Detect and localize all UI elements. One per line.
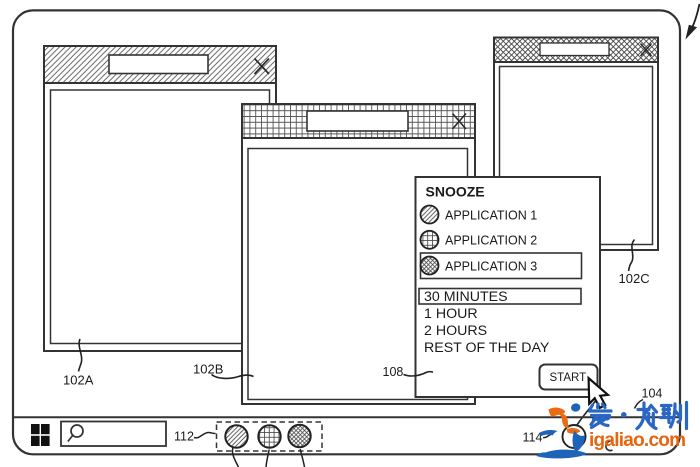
svg-text:APPLICATION 2: APPLICATION 2 <box>445 234 537 248</box>
svg-text:REST OF THE DAY: REST OF THE DAY <box>424 340 550 356</box>
svg-text:108: 108 <box>383 365 404 379</box>
svg-text:102C: 102C <box>619 271 650 286</box>
svg-text:igaliao.com: igaliao.com <box>589 430 685 451</box>
svg-text:START: START <box>550 372 587 384</box>
svg-text:112: 112 <box>174 430 194 444</box>
svg-text:SNOOZE: SNOOZE <box>426 184 485 200</box>
svg-text:2 HOURS: 2 HOURS <box>424 323 487 339</box>
svg-text:104: 104 <box>642 387 663 401</box>
svg-text:102A: 102A <box>63 372 94 387</box>
svg-text:30 MINUTES: 30 MINUTES <box>424 289 508 305</box>
svg-text:1 HOUR: 1 HOUR <box>424 306 478 322</box>
svg-text:102B: 102B <box>193 362 223 377</box>
svg-text:APPLICATION 3: APPLICATION 3 <box>445 259 537 273</box>
svg-text:APPLICATION 1: APPLICATION 1 <box>445 208 537 222</box>
svg-text:114: 114 <box>523 431 543 445</box>
